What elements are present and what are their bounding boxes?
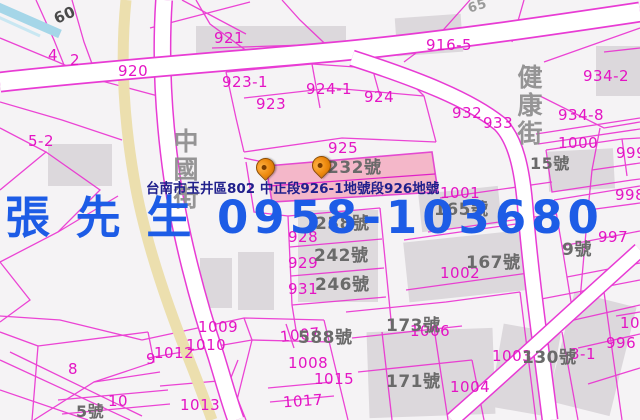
building xyxy=(547,292,636,416)
map-canvas: 921920923-1923924-1924916-5934-2934-8933… xyxy=(0,0,640,420)
building xyxy=(48,144,112,186)
building xyxy=(596,46,640,96)
road-main xyxy=(0,12,640,82)
building xyxy=(238,252,274,310)
listing-address-text: 台南市玉井區802 中正段926-1地號段926地號 xyxy=(146,177,439,197)
stream xyxy=(0,6,60,34)
